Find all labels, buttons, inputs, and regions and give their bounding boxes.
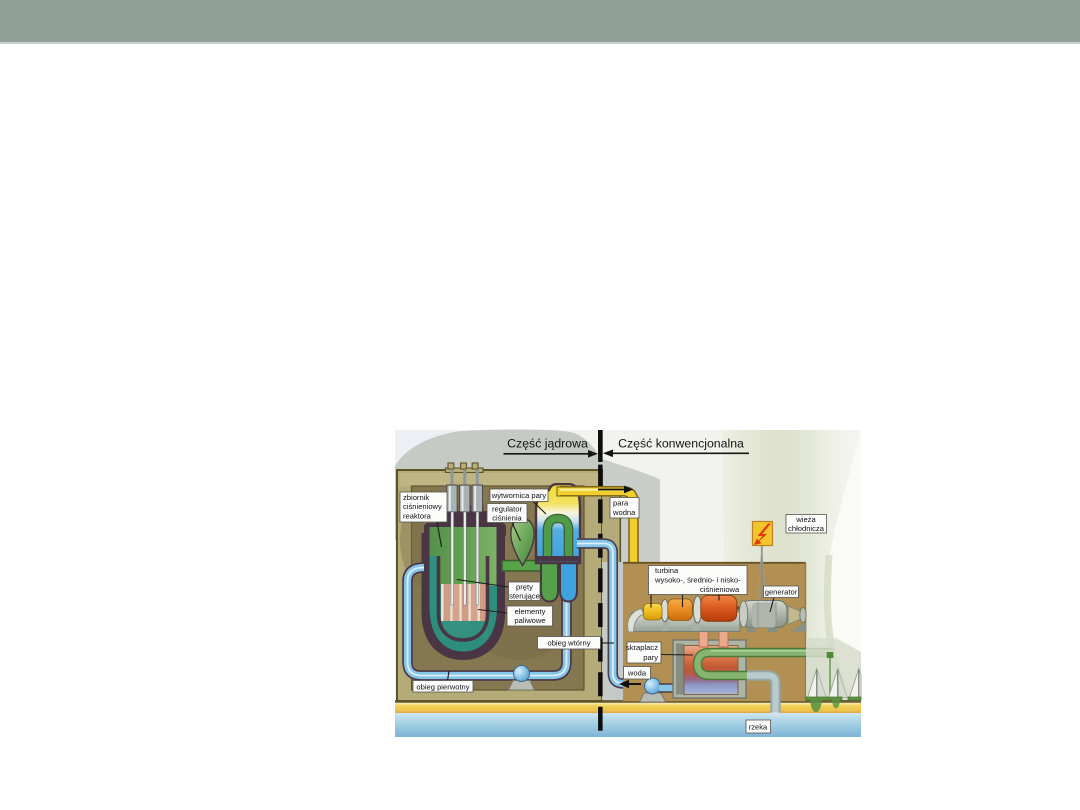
svg-text:para: para <box>613 499 629 508</box>
svg-text:pręty: pręty <box>516 583 533 592</box>
svg-text:turbina: turbina <box>655 566 679 575</box>
svg-text:Część jądrowa: Część jądrowa <box>507 437 588 451</box>
svg-text:generator: generator <box>765 588 798 597</box>
svg-text:wodna: wodna <box>612 508 636 517</box>
svg-text:elementy: elementy <box>515 607 546 616</box>
svg-text:obieg wtórny: obieg wtórny <box>547 639 590 648</box>
svg-text:ciśnienia: ciśnienia <box>492 513 522 522</box>
svg-text:skraplacz: skraplacz <box>626 643 658 652</box>
svg-text:obieg pierwotny: obieg pierwotny <box>416 682 469 691</box>
svg-text:chłodnicza: chłodnicza <box>788 524 825 533</box>
svg-text:zbiornik: zbiornik <box>403 493 429 502</box>
svg-text:wieża: wieża <box>795 515 816 524</box>
svg-text:wytwornica pary: wytwornica pary <box>491 491 547 500</box>
svg-text:sterujące: sterujące <box>509 592 540 601</box>
svg-text:ciśnieniowy: ciśnieniowy <box>403 502 442 511</box>
svg-text:wysoko-, średnio- i nisko-: wysoko-, średnio- i nisko- <box>654 576 741 585</box>
svg-text:reaktora: reaktora <box>403 512 432 521</box>
svg-text:regulator: regulator <box>492 504 522 513</box>
svg-text:Część konwencjonalna: Część konwencjonalna <box>618 437 744 451</box>
svg-text:pary: pary <box>643 653 658 662</box>
svg-text:paliwowe: paliwowe <box>514 616 545 625</box>
svg-text:rzeka: rzeka <box>749 723 768 732</box>
svg-text:ciśnieniowa: ciśnieniowa <box>700 585 740 594</box>
svg-text:woda: woda <box>627 669 647 678</box>
